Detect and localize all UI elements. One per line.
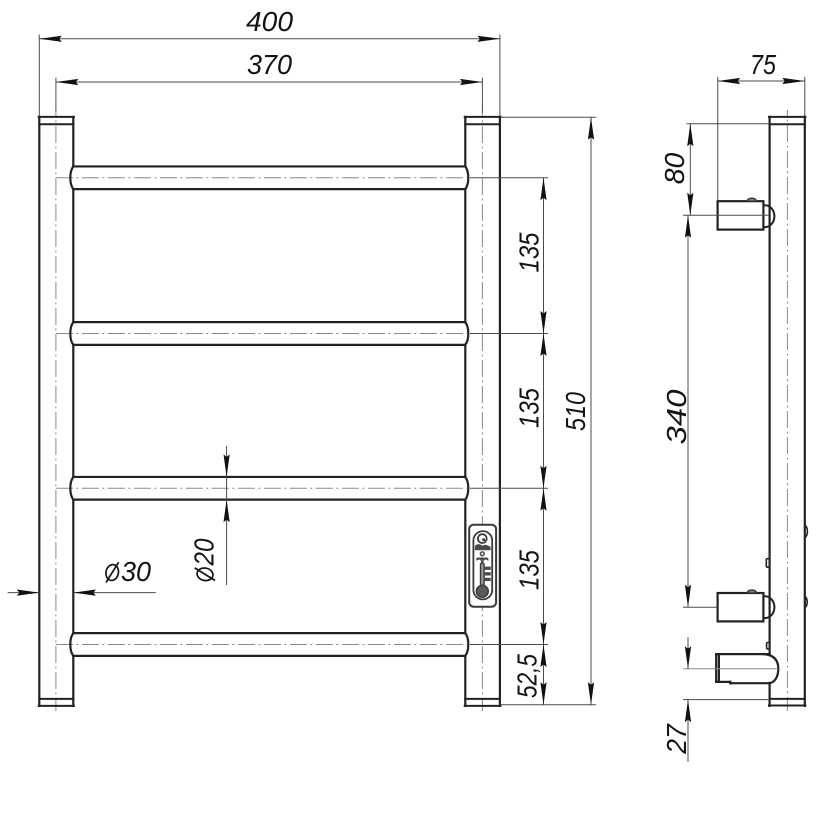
svg-text:400: 400 [246,6,293,37]
svg-text:510: 510 [560,392,591,431]
svg-text:75: 75 [750,49,776,80]
svg-text:30: 30 [121,556,151,587]
svg-text:80: 80 [659,152,690,184]
svg-text:52,5: 52,5 [512,654,543,698]
svg-text:370: 370 [247,49,292,80]
svg-text:135: 135 [514,550,545,590]
svg-text:135: 135 [514,232,545,272]
svg-text:27: 27 [661,723,692,755]
svg-text:20: 20 [189,538,220,566]
svg-text:135: 135 [514,388,545,428]
svg-text:340: 340 [661,389,692,445]
